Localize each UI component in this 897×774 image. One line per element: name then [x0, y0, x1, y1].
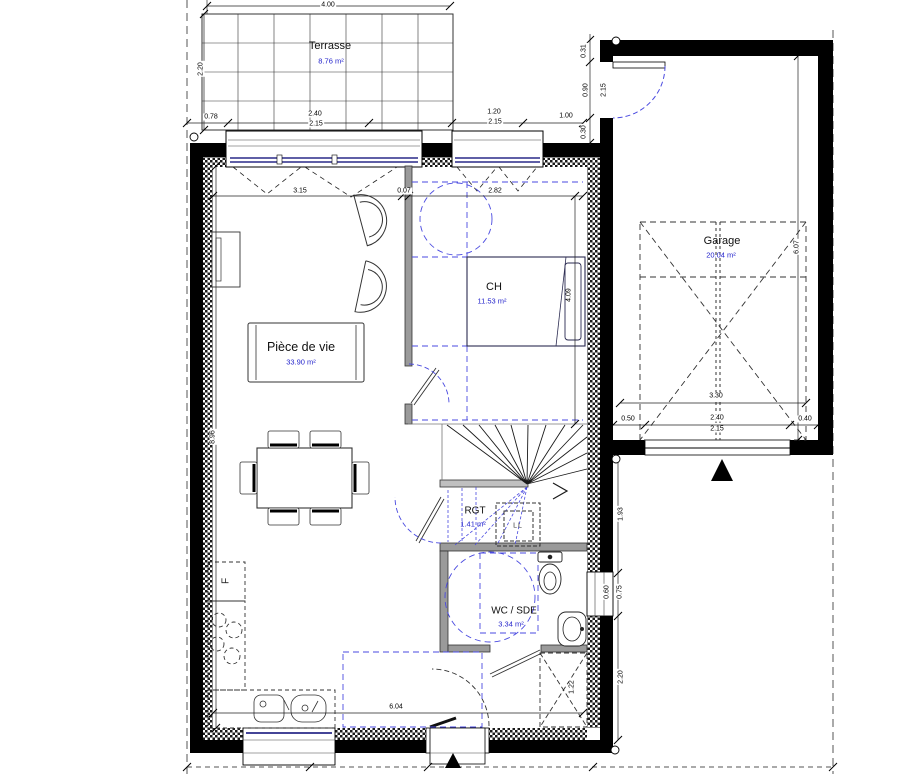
stairs-direction-arrow [553, 483, 567, 499]
dim-wc-window-height: 0.75 [617, 584, 624, 600]
room-label-bedroom: CH [486, 281, 502, 293]
dim-entry-right: 2.20 [618, 669, 625, 685]
dim-kitchen-wall: 6.04 [388, 704, 404, 711]
dim-garage-door-width: 2.40 [709, 415, 725, 422]
dim-garage-side-gap: 0.30 [581, 124, 588, 140]
kitchen-units [208, 562, 335, 728]
dim-garage-door-left: 0.50 [620, 416, 636, 423]
corner-marker [190, 133, 198, 141]
bathroom-fixtures [538, 552, 586, 646]
dim-garage-door-height: 2.15 [709, 426, 725, 433]
bay-window [226, 131, 422, 197]
room-area-bedroom: 11.53 m² [477, 297, 506, 306]
room-label-terrasse: Terrasse [309, 40, 351, 52]
dining-table [257, 448, 352, 508]
stairs [408, 424, 587, 499]
room-area-terrasse: 8.76 m² [318, 57, 343, 66]
kitchen-sink [254, 695, 326, 722]
dim-closet-width: 1.22 [569, 679, 576, 695]
room-label-garage: Garage [704, 235, 741, 247]
dim-front-seg1: 0.78 [203, 114, 219, 121]
dim-garage-depth: 6.07 [794, 239, 801, 255]
dim-terrace-depth: 2.20 [198, 61, 205, 77]
dim-ch-window-glass: 2.15 [487, 119, 503, 126]
dim-garage-side-offset: 0.31 [581, 43, 588, 59]
dim-front-seg2: 1.00 [558, 113, 574, 120]
garage-door [645, 440, 790, 455]
corner-marker [612, 37, 620, 45]
dim-bedroom-depth: 4.09 [566, 287, 573, 303]
garage-entry-arrow [711, 459, 733, 481]
dim-ch-window-width: 1.20 [486, 109, 502, 116]
dim-garage-side-door-height: 2.15 [601, 82, 608, 98]
front-door [426, 669, 489, 764]
room-area-storage: 1.41 m² [460, 520, 485, 529]
dim-bedroom-width: 2.82 [487, 188, 503, 195]
dim-bay-width: 2.40 [307, 111, 323, 118]
armchair [354, 189, 393, 246]
dim-wc-window-width: 0.60 [604, 584, 611, 600]
room-area-garage: 20.04 m² [706, 251, 736, 260]
corner-marker [612, 455, 620, 463]
washing-machine-label: LL [513, 523, 523, 530]
room-area-living: 33.90 m² [286, 358, 316, 367]
cooktop [210, 613, 242, 664]
washbasin [558, 612, 586, 646]
windows [226, 62, 790, 765]
dim-garage-side-door-width: 0.90 [583, 82, 590, 98]
dim-hall-right: 1.93 [618, 506, 625, 522]
dim-terrace-width: 4.00 [320, 2, 336, 9]
furniture [212, 189, 585, 525]
plan-drawing [0, 0, 897, 774]
toilet [538, 552, 562, 594]
floor-plan: Terrasse 8.76 m² Pièce de vie 33.90 m² C… [0, 0, 897, 774]
corner-marker [611, 746, 619, 754]
dim-living-width: 3.15 [292, 188, 308, 195]
room-label-storage: RGT [464, 506, 485, 517]
terrace-grid [202, 14, 453, 130]
kitchen-window [243, 728, 335, 765]
dim-partition: 0.07 [396, 188, 412, 195]
room-label-living: Pièce de vie [267, 340, 335, 354]
dim-garage-door-right: 0.40 [797, 416, 813, 423]
storage-shelf-guides [448, 487, 527, 545]
room-label-bathroom: WC / SDE [491, 606, 537, 617]
dim-garage-width: 3.30 [708, 393, 724, 400]
counter-left [208, 601, 245, 690]
room-area-bathroom: 3.34 m² [498, 620, 523, 629]
dim-living-depth: 8.96 [210, 429, 217, 445]
garage-side-door [600, 62, 665, 118]
fridge-label: F [221, 578, 232, 584]
dim-bay-glass: 2.15 [308, 121, 324, 128]
armchair [355, 261, 391, 317]
